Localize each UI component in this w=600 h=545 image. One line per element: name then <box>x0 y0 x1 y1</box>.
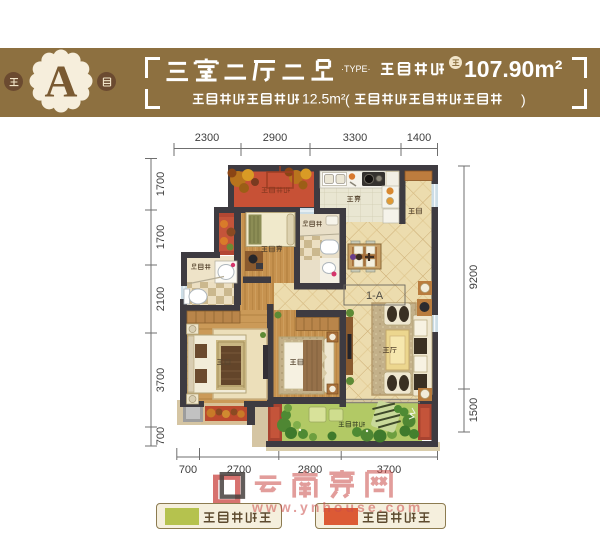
svg-text:12.5m²: 12.5m² <box>302 91 346 107</box>
svg-text:(: ( <box>345 92 350 108</box>
svg-text:): ) <box>521 92 526 108</box>
